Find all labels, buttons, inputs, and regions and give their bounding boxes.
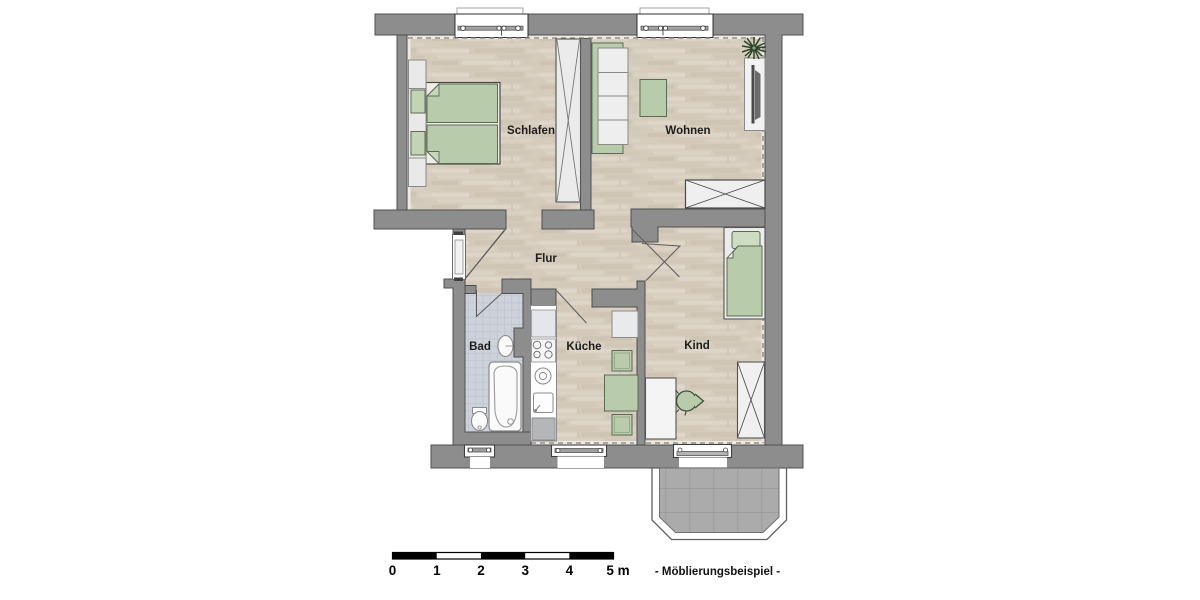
svg-text:- Möblierungsbeispiel -: - Möblierungsbeispiel - — [655, 566, 780, 578]
svg-text:Kind: Kind — [684, 340, 710, 352]
svg-text:Schlafen: Schlafen — [507, 125, 555, 137]
svg-text:0: 0 — [389, 563, 397, 578]
svg-text:1: 1 — [433, 563, 441, 578]
svg-text:5 m: 5 m — [606, 563, 629, 578]
svg-text:2: 2 — [477, 563, 485, 578]
svg-text:3: 3 — [521, 563, 529, 578]
svg-text:Bad: Bad — [469, 341, 491, 353]
svg-text:Flur: Flur — [535, 253, 557, 265]
svg-text:4: 4 — [566, 563, 574, 578]
svg-text:Wohnen: Wohnen — [665, 125, 710, 137]
svg-text:Küche: Küche — [566, 341, 601, 353]
